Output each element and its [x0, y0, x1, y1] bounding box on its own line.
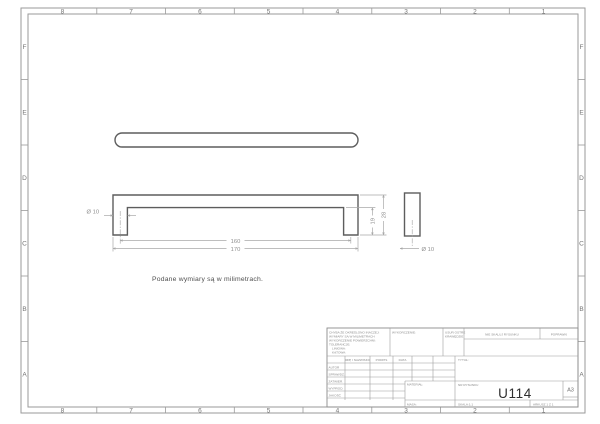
drawing-canvas: 8 7 6 5 4 3 2 1 8 7 6 5 4 3 2 1 F E D C … [0, 0, 600, 424]
outer-border [21, 8, 585, 413]
zone-row-left-f: F [23, 44, 27, 51]
drawing-sheet: 8 7 6 5 4 3 2 1 8 7 6 5 4 3 2 1 F E D C … [0, 0, 600, 424]
handle-side-view [405, 193, 421, 246]
row-author: AUTOR [329, 365, 341, 369]
zone-row-left-e: E [22, 110, 27, 117]
revision-label: POPRAWKI [551, 333, 568, 337]
finish-label: WYKOŃCZENIE: [392, 331, 416, 335]
row-qa: JAKOŚĆ [329, 392, 342, 397]
tolerance-note: CHYBA ŻE OKREŚLONO INACZEJ: WYMIARY SĄ W… [329, 330, 380, 355]
row-checked: SPRAWDZ. [329, 372, 345, 376]
zone-row-right-e: E [579, 110, 584, 117]
front-hole-dim-text: Ø 10 [87, 210, 100, 216]
deburr-label-line2: KRAWĘDZIE [445, 335, 463, 339]
weight-label: MASA: [407, 402, 417, 406]
zone-col-top-2: 2 [473, 8, 477, 15]
do-not-scale-label: NIE SKALUJ RYSUNKU [485, 333, 519, 337]
zone-row-left-c: C [22, 241, 27, 248]
zone-row-right-c: C [579, 241, 584, 248]
side-hole-dim-text: Ø 10 [422, 247, 435, 253]
handle-front-view [113, 195, 358, 244]
zone-ticks [21, 8, 585, 413]
zone-row-left-b: B [22, 306, 26, 313]
date-header: DATA [399, 358, 408, 362]
leg-height-dim-text: 19 [370, 218, 376, 224]
zone-row-right-a: A [579, 372, 584, 379]
title-label: TYTUŁ: [458, 358, 469, 362]
zone-col-top-8: 8 [61, 8, 65, 15]
zone-col-top-7: 7 [129, 8, 133, 15]
zone-row-right-b: B [579, 306, 583, 313]
sheet-frame: 8 7 6 5 4 3 2 1 8 7 6 5 4 3 2 1 F E D C … [21, 8, 585, 415]
zone-col-bot-8: 8 [61, 408, 65, 415]
row-approved: ZATWIER. [329, 379, 344, 383]
zone-row-right-d: D [579, 175, 584, 182]
zone-col-bot-4: 4 [336, 408, 340, 415]
spacing-dim-text: 160 [231, 239, 241, 245]
title-block: CHYBA ŻE OKREŚLONO INACZEJ: WYMIARY SĄ W… [327, 328, 578, 407]
dimension-spacing: 160 [120, 237, 351, 245]
sheet-label: ARKUSZ 1 Z 1 [533, 402, 554, 406]
total-height-dim-text: 28 [382, 212, 388, 218]
zone-col-top-5: 5 [267, 8, 271, 15]
zone-col-bot-3: 3 [404, 408, 408, 415]
scale-label: SKALA:1:1 [458, 402, 473, 406]
paper-size: A3 [567, 388, 574, 394]
handle-top-view [115, 133, 358, 147]
dimension-front-hole: Ø 10 [87, 210, 137, 216]
zone-row-left-a: A [22, 372, 27, 379]
zone-col-top-3: 3 [404, 8, 408, 15]
zone-row-left-d: D [22, 175, 27, 182]
overall-dim-text: 170 [231, 247, 241, 253]
signature-header: PODPIS [376, 358, 388, 362]
zone-col-top-1: 1 [542, 8, 546, 15]
zone-col-bot-7: 7 [129, 408, 133, 415]
drawing-number: U114 [498, 386, 532, 401]
zone-col-bot-6: 6 [198, 408, 202, 415]
name-header: IMIĘ I NAZWISKO [345, 358, 371, 362]
zone-col-top-6: 6 [198, 8, 202, 15]
inner-border [28, 14, 578, 407]
dwg-number-label: NR RYSUNKU [458, 383, 478, 387]
zone-col-top-4: 4 [336, 8, 340, 15]
tolerance-line-6: KĄTOWA: [332, 351, 346, 355]
row-mfg: WYPROD. [329, 386, 344, 390]
zone-col-bot-5: 5 [267, 408, 271, 415]
zone-col-bot-1: 1 [542, 408, 546, 415]
zone-row-right-f: F [580, 44, 584, 51]
dimension-total-height: 28 [360, 195, 388, 235]
units-note: Podane wymiary są w milimetrach. [152, 276, 263, 283]
zone-col-bot-2: 2 [473, 408, 477, 415]
dimension-side-hole: Ø 10 [400, 247, 434, 253]
material-label: MATERIAŁ: [407, 383, 423, 387]
